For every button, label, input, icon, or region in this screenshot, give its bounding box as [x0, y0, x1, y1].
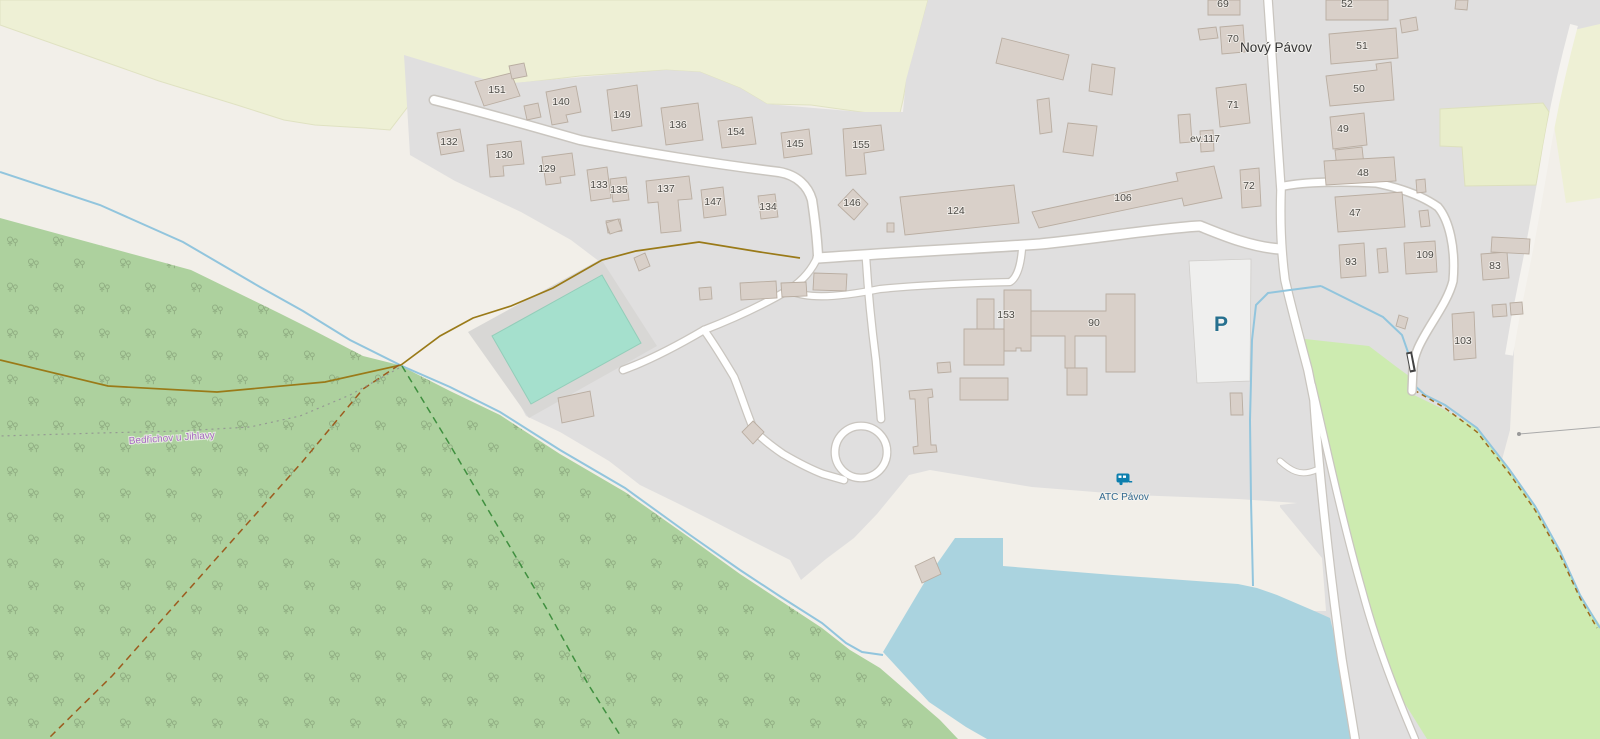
svg-text:50: 50 — [1353, 83, 1365, 95]
svg-text:83: 83 — [1489, 260, 1501, 272]
svg-text:49: 49 — [1337, 123, 1349, 135]
svg-text:136: 136 — [669, 119, 687, 131]
svg-text:134: 134 — [759, 201, 777, 213]
svg-text:109: 109 — [1416, 249, 1434, 261]
svg-text:93: 93 — [1345, 256, 1357, 268]
svg-text:103: 103 — [1454, 335, 1472, 347]
svg-text:137: 137 — [657, 183, 675, 195]
svg-text:52: 52 — [1341, 0, 1353, 10]
svg-text:P: P — [1214, 313, 1228, 336]
svg-text:149: 149 — [613, 109, 631, 121]
svg-text:130: 130 — [495, 149, 513, 161]
svg-text:Nový Pávov: Nový Pávov — [1240, 40, 1312, 55]
svg-text:133: 133 — [590, 179, 608, 191]
svg-text:72: 72 — [1243, 180, 1255, 192]
svg-text:135: 135 — [610, 184, 628, 196]
svg-text:51: 51 — [1356, 40, 1368, 52]
svg-text:ev.117: ev.117 — [1190, 133, 1220, 145]
svg-text:140: 140 — [552, 96, 570, 108]
svg-text:151: 151 — [488, 84, 506, 96]
svg-text:71: 71 — [1227, 99, 1239, 111]
svg-text:129: 129 — [538, 163, 556, 175]
svg-text:153: 153 — [997, 309, 1015, 321]
svg-text:132: 132 — [440, 136, 458, 148]
svg-text:147: 147 — [704, 196, 722, 208]
svg-text:124: 124 — [947, 205, 965, 217]
svg-text:ATC Pávov: ATC Pávov — [1099, 492, 1149, 503]
svg-text:146: 146 — [843, 197, 861, 209]
svg-text:48: 48 — [1357, 167, 1369, 179]
svg-text:90: 90 — [1088, 317, 1100, 329]
svg-text:70: 70 — [1227, 33, 1239, 45]
svg-text:106: 106 — [1114, 192, 1132, 204]
svg-text:69: 69 — [1217, 0, 1229, 10]
svg-text:154: 154 — [727, 126, 745, 138]
svg-text:47: 47 — [1349, 207, 1361, 219]
svg-text:155: 155 — [852, 139, 870, 151]
svg-text:145: 145 — [786, 138, 804, 150]
